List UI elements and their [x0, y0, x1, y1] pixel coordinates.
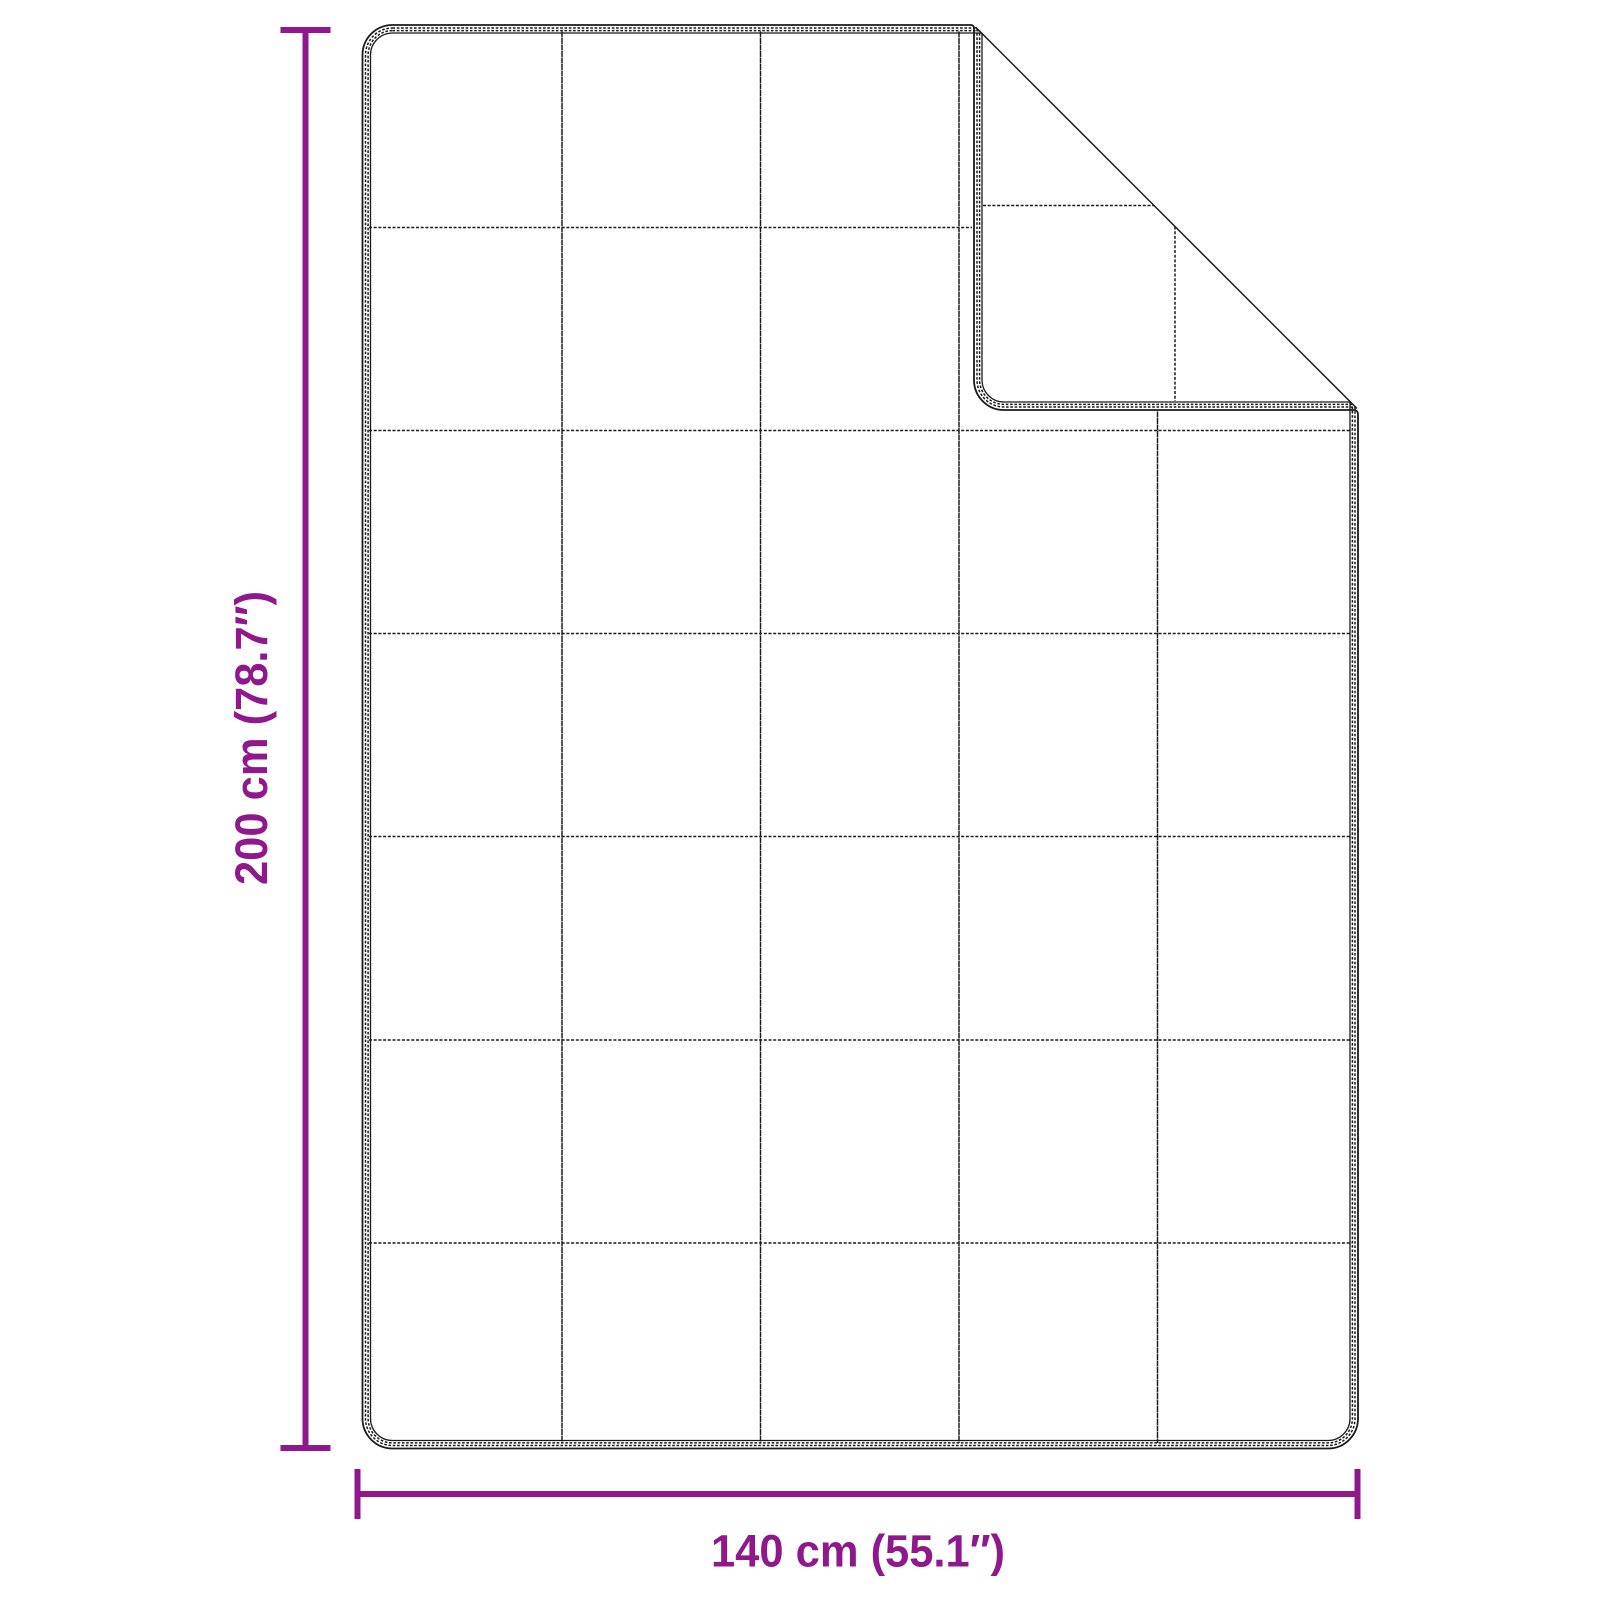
svg-text:200 cm (78.7″): 200 cm (78.7″): [226, 591, 277, 885]
svg-text:140 cm (55.1″): 140 cm (55.1″): [711, 1526, 1005, 1577]
